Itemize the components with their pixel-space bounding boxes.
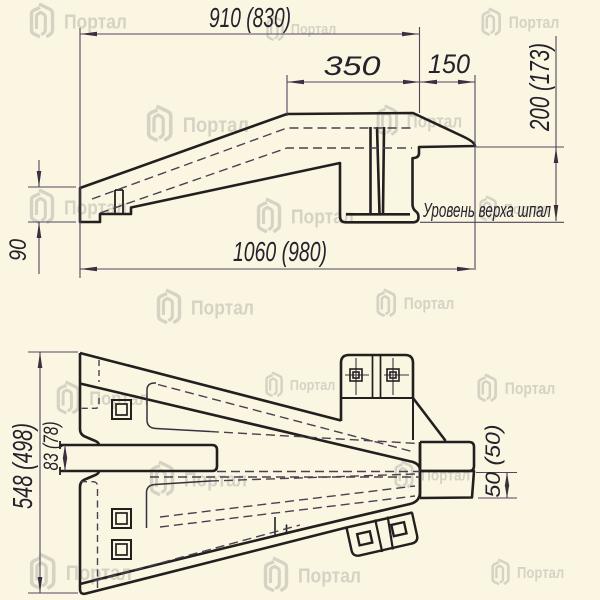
svg-text:548 (498): 548 (498) (7, 423, 38, 509)
svg-text:50 (50): 50 (50) (482, 425, 505, 498)
svg-text:1060 (980): 1060 (980) (233, 236, 327, 267)
svg-text:90: 90 (5, 238, 32, 261)
svg-text:Уровень верха шпал: Уровень верха шпал (422, 200, 551, 222)
svg-text:83 (78): 83 (78) (40, 422, 63, 471)
svg-text:200 (173): 200 (173) (524, 43, 555, 132)
svg-text:150: 150 (428, 49, 470, 79)
svg-text:910 (830): 910 (830) (209, 2, 291, 33)
svg-text:350: 350 (324, 51, 381, 81)
